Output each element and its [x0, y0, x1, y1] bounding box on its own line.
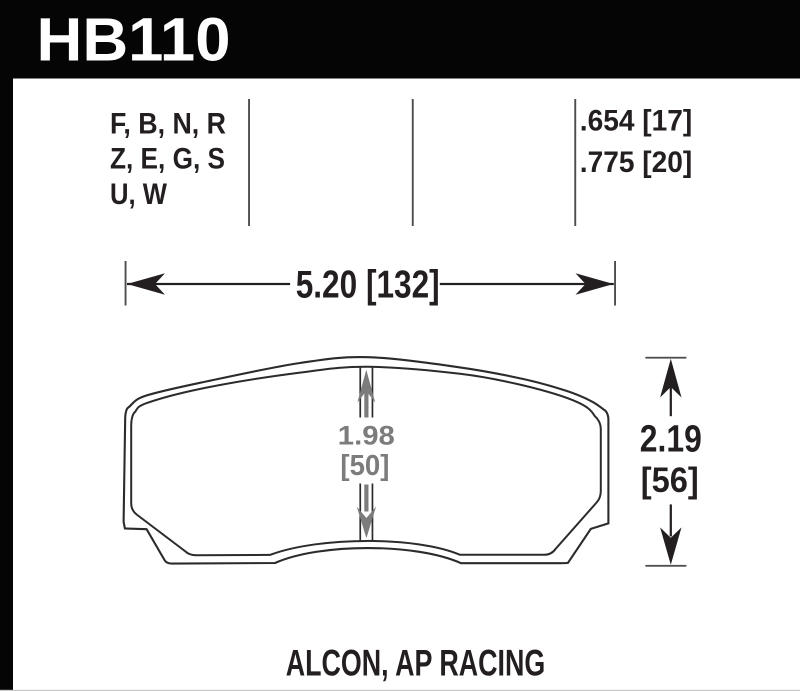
svg-text:1.98: 1.98: [338, 419, 395, 450]
svg-text:Z, E, G, S: Z, E, G, S: [110, 142, 225, 175]
svg-text:.775 [20]: .775 [20]: [580, 146, 693, 179]
svg-text:.654 [17]: .654 [17]: [580, 105, 693, 138]
svg-text:U, W: U, W: [110, 178, 167, 211]
svg-text:[56]: [56]: [641, 461, 699, 500]
svg-text:ALCON, AP RACING: ALCON, AP RACING: [286, 643, 546, 684]
svg-text:5.20 [132]: 5.20 [132]: [296, 262, 440, 306]
svg-text:[50]: [50]: [340, 450, 389, 482]
svg-text:F, B, N, R: F, B, N, R: [110, 108, 226, 141]
svg-text:2.19: 2.19: [640, 418, 702, 460]
svg-text:HB110: HB110: [37, 5, 231, 74]
